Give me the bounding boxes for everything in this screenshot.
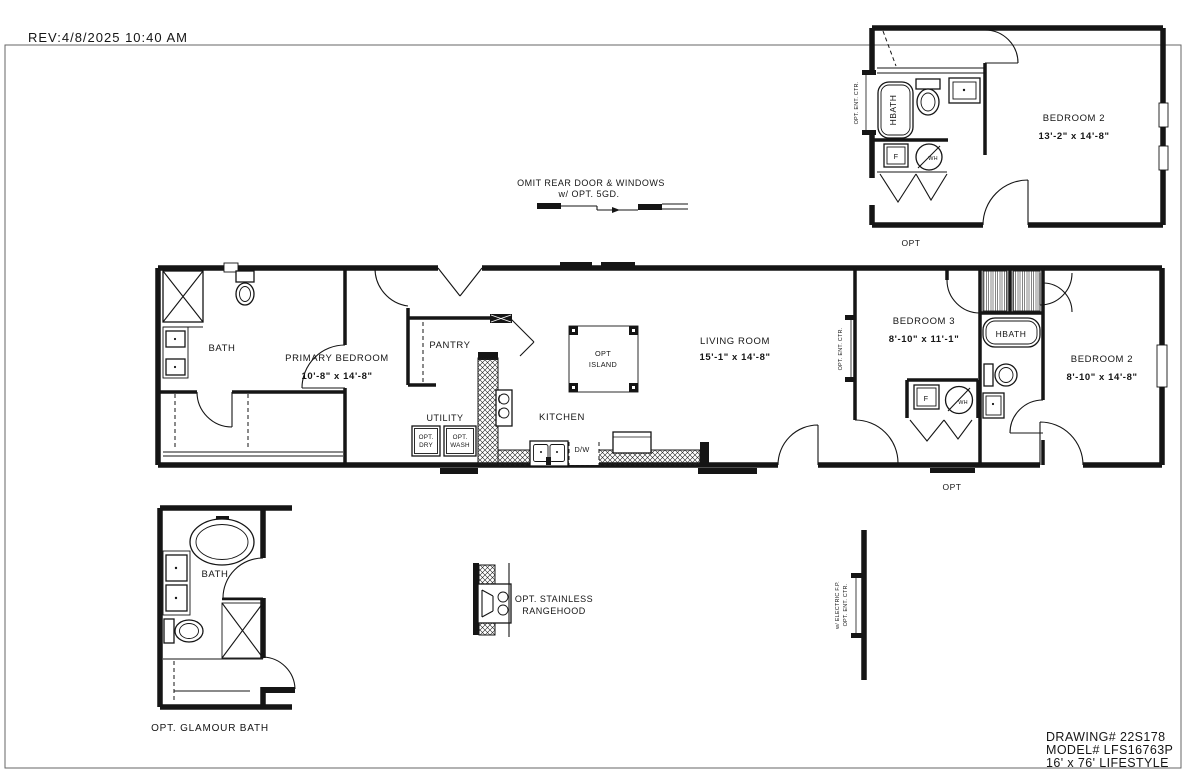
series-name: 16' x 76' LIFESTYLE	[1046, 756, 1169, 770]
living-room-label: LIVING ROOM	[700, 336, 770, 347]
main-ent-ctr-label: OPT. ENT. CTR.	[838, 327, 844, 370]
revision-stamp: REV:4/8/2025 10:40 AM	[28, 30, 188, 45]
dishwasher: D/W	[569, 442, 599, 465]
window-marker	[560, 262, 592, 269]
threshold-marker	[698, 468, 757, 474]
sink-icon	[983, 393, 1004, 418]
pantry-cabinet	[490, 314, 512, 323]
threshold-marker	[930, 468, 975, 473]
main-furnace-label: F	[924, 394, 929, 403]
omit-note-line1: OMIT REAR DOOR & WINDOWS	[517, 178, 665, 188]
toilet-icon	[984, 364, 1017, 386]
fp-note-line2: w/ ELECTRIC F.P.	[835, 581, 841, 630]
toilet-icon	[236, 271, 254, 305]
threshold-marker	[440, 468, 478, 474]
bedroom2-label: BEDROOM 2	[1071, 354, 1133, 365]
opt-dry-line1: OPT.	[419, 434, 434, 441]
window	[1157, 345, 1167, 387]
omit-note-line2: w/ OPT. 5GD.	[557, 189, 619, 199]
tub-icon: HBATH	[878, 82, 913, 138]
window	[1159, 146, 1168, 170]
wardrobe-closet	[1013, 271, 1040, 311]
opt-dryer-box: OPT. DRY	[412, 426, 440, 456]
main-hbath-label: HBATH	[996, 329, 1027, 339]
opt-wash-line1: OPT.	[453, 434, 468, 441]
kitchen-label: KITCHEN	[539, 412, 585, 423]
opt-unit-furnace-label: F	[894, 152, 899, 161]
water-heater-icon: WH	[946, 387, 973, 414]
wardrobe-closet	[983, 271, 1007, 311]
water-heater-icon: WH	[916, 144, 942, 170]
bath-label: BATH	[208, 343, 235, 354]
refrigerator-icon	[613, 432, 651, 453]
fp-note-line1: OPT. ENT. CTR.	[843, 583, 849, 626]
island-line1: OPT	[595, 349, 611, 358]
opt-unit-bedroom2-dims: 13'-2" x 14'-8"	[1038, 131, 1109, 142]
opt-dry-line2: DRY	[419, 442, 433, 449]
title-block: DRAWING# 22S178 MODEL# LFS16763P 16' x 7…	[1046, 730, 1173, 770]
rangehood-note-line2: RANGEHOOD	[522, 606, 586, 616]
bedroom2-dims: 8'-10" x 14'-8"	[1066, 372, 1137, 383]
opt-washer-box: OPT. WASH	[444, 426, 476, 456]
rangehood-note-line1: OPT. STAINLESS	[515, 594, 593, 604]
opt-unit-ent-ctr-label: OPT. ENT. CTR.	[854, 81, 860, 124]
living-room-dims: 15'-1" x 14'-8"	[699, 352, 770, 363]
main-opt-label: OPT	[943, 482, 962, 492]
primary-bedroom-label: PRIMARY BEDROOM	[285, 353, 389, 364]
toilet-icon	[164, 619, 203, 643]
bedroom3-dims: 8'-10" x 11'-1"	[889, 334, 960, 345]
glamour-bath-caption: OPT. GLAMOUR BATH	[151, 723, 269, 734]
model-number: MODEL# LFS16763P	[1046, 743, 1173, 757]
floorplan-canvas: REV:4/8/2025 10:40 AM OMIT REAR DOOR & W…	[0, 0, 1200, 776]
furnace-icon: F	[884, 144, 908, 167]
window	[1159, 103, 1168, 127]
opt-unit-hbath-label: HBATH	[888, 95, 898, 126]
range-icon	[496, 390, 512, 426]
primary-bedroom-dims: 10'-8" x 14'-8"	[301, 371, 372, 382]
toilet-icon	[916, 79, 940, 115]
paper	[0, 0, 1200, 776]
tub-icon: HBATH	[983, 318, 1040, 347]
opt-unit-wh-label: WH	[928, 156, 938, 162]
island-line2: ISLAND	[589, 360, 617, 369]
glamour-bath-label: BATH	[201, 569, 228, 580]
opt-wash-line2: WASH	[450, 442, 470, 449]
shower-icon	[163, 271, 203, 327]
furnace-icon: F	[914, 385, 939, 409]
range-icon	[478, 584, 511, 623]
opt-unit-bedroom2-label: BEDROOM 2	[1043, 113, 1105, 124]
sink-icon	[949, 78, 980, 103]
drawing-number: DRAWING# 22S178	[1046, 730, 1165, 744]
utility-label: UTILITY	[426, 413, 463, 423]
dishwasher-label: D/W	[574, 445, 589, 454]
bedroom3-label: BEDROOM 3	[893, 316, 955, 327]
pantry-label: PANTRY	[429, 340, 470, 351]
opt-unit-opt-label: OPT	[902, 238, 921, 248]
main-wh-label: WH	[958, 400, 968, 406]
window-marker	[601, 262, 635, 269]
kitchen-sink-icon	[530, 441, 568, 466]
